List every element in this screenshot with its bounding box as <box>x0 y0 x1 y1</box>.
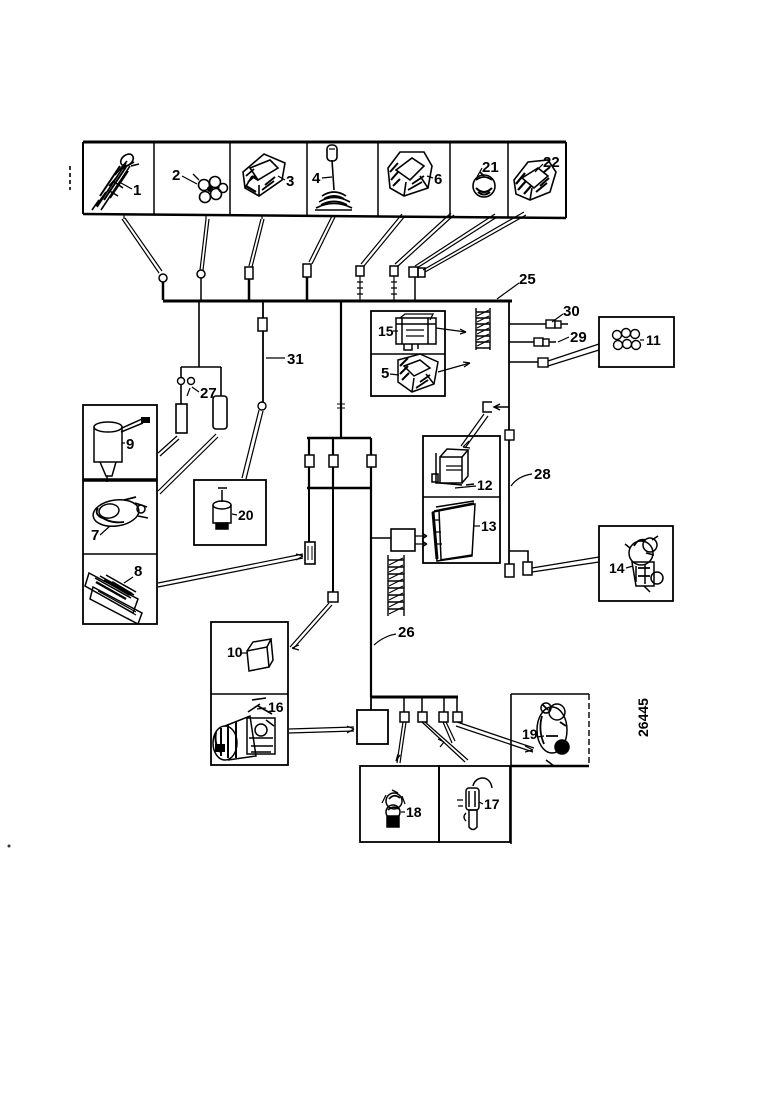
svg-text:3: 3 <box>286 173 294 190</box>
svg-text:19: 19 <box>522 726 538 742</box>
svg-text:4: 4 <box>312 170 321 187</box>
svg-text:22: 22 <box>543 154 560 171</box>
svg-text:29: 29 <box>570 329 587 346</box>
svg-text:25: 25 <box>519 271 536 288</box>
svg-text:7: 7 <box>91 527 99 544</box>
svg-text:2: 2 <box>172 167 180 184</box>
svg-text:26: 26 <box>398 624 415 641</box>
svg-text:8: 8 <box>134 563 142 580</box>
svg-text:12: 12 <box>477 477 493 493</box>
svg-text:20: 20 <box>238 507 254 523</box>
svg-text:10: 10 <box>227 644 243 660</box>
svg-text:21: 21 <box>482 159 499 176</box>
svg-text:11: 11 <box>646 332 661 348</box>
svg-text:6: 6 <box>434 171 442 188</box>
svg-text:5: 5 <box>381 365 389 382</box>
svg-text:16: 16 <box>268 699 284 715</box>
svg-text:14: 14 <box>609 560 625 576</box>
svg-text:13: 13 <box>481 518 497 534</box>
svg-text:18: 18 <box>406 804 422 820</box>
svg-text:1: 1 <box>133 182 141 199</box>
svg-text:15: 15 <box>378 323 394 339</box>
svg-text:17: 17 <box>484 796 500 812</box>
svg-text:31: 31 <box>287 351 304 368</box>
svg-text:30: 30 <box>563 303 580 320</box>
svg-text:27: 27 <box>200 385 217 402</box>
svg-text:28: 28 <box>534 466 551 483</box>
svg-text:9: 9 <box>126 436 134 453</box>
svg-text:26445: 26445 <box>635 698 651 737</box>
